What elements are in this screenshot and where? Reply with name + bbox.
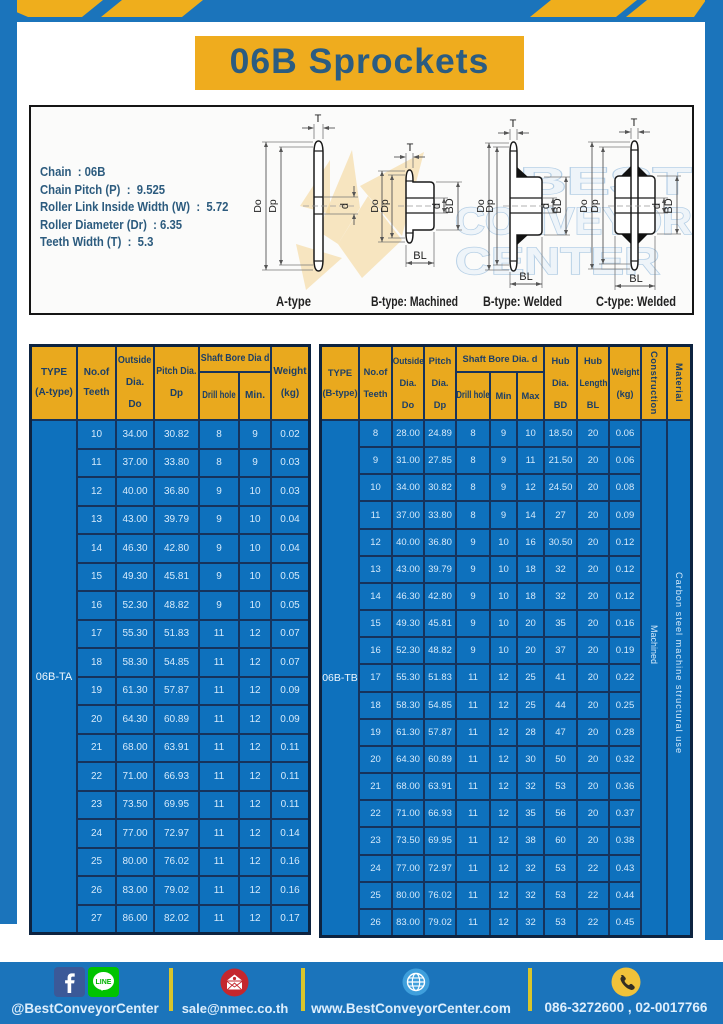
svg-text:Do: Do <box>252 199 264 213</box>
svg-text:d: d <box>431 203 443 209</box>
svg-text:T: T <box>510 118 517 130</box>
svg-text:T: T <box>631 117 638 129</box>
svg-text:A-type: A-type <box>276 294 311 309</box>
svg-text:Dp: Dp <box>379 199 391 213</box>
svg-text:d: d <box>540 203 552 209</box>
svg-text:BL: BL <box>629 273 642 285</box>
svg-text:BD: BD <box>552 198 564 213</box>
svg-text:B-type: Machined: B-type: Machined <box>371 294 458 309</box>
svg-text:LINE: LINE <box>96 979 112 986</box>
svg-text:BD: BD <box>663 198 675 213</box>
svg-text:B-type: Welded: B-type: Welded <box>483 294 562 309</box>
svg-text:BD: BD <box>444 198 456 213</box>
svg-text:T: T <box>315 113 322 125</box>
svg-text:d: d <box>651 203 663 209</box>
svg-text:C-type: Welded: C-type: Welded <box>596 294 676 309</box>
svg-text:Dp: Dp <box>484 199 496 213</box>
svg-text:Dp: Dp <box>589 199 601 213</box>
svg-text:d: d <box>339 203 351 209</box>
svg-text:BL: BL <box>413 250 426 262</box>
svg-text:BL: BL <box>519 271 532 283</box>
svg-text:Dp: Dp <box>267 199 279 213</box>
svg-text:T: T <box>407 142 414 154</box>
